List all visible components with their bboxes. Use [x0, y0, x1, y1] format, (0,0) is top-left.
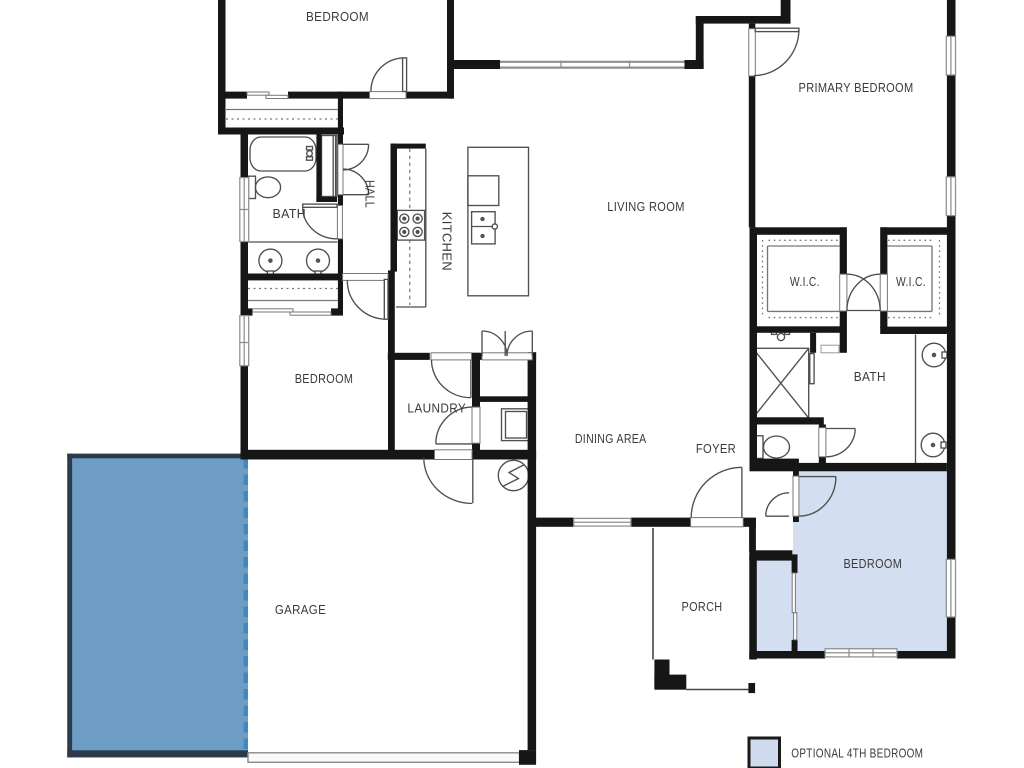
svg-text:LAUNDRY: LAUNDRY	[407, 401, 466, 416]
svg-text:W.I.C.: W.I.C.	[896, 274, 926, 289]
svg-text:W.I.C.: W.I.C.	[790, 274, 820, 289]
svg-text:GARAGE: GARAGE	[275, 602, 326, 617]
svg-text:FOYER: FOYER	[696, 441, 736, 456]
svg-text:DINING AREA: DINING AREA	[575, 431, 647, 446]
svg-text:BEDROOM: BEDROOM	[306, 9, 369, 24]
svg-text:PORCH: PORCH	[682, 599, 723, 614]
svg-text:BEDROOM: BEDROOM	[295, 371, 354, 386]
svg-text:OPTIONAL 4TH BEDROOM: OPTIONAL 4TH BEDROOM	[791, 746, 923, 761]
svg-text:BEDROOM: BEDROOM	[843, 556, 902, 571]
svg-text:HALL: HALL	[363, 180, 378, 208]
svg-text:BATH: BATH	[273, 206, 307, 221]
svg-text:BATH: BATH	[854, 369, 886, 384]
svg-text:LIVING ROOM: LIVING ROOM	[607, 199, 685, 214]
svg-text:PRIMARY BEDROOM: PRIMARY BEDROOM	[799, 80, 914, 95]
svg-text:KITCHEN: KITCHEN	[439, 212, 454, 271]
